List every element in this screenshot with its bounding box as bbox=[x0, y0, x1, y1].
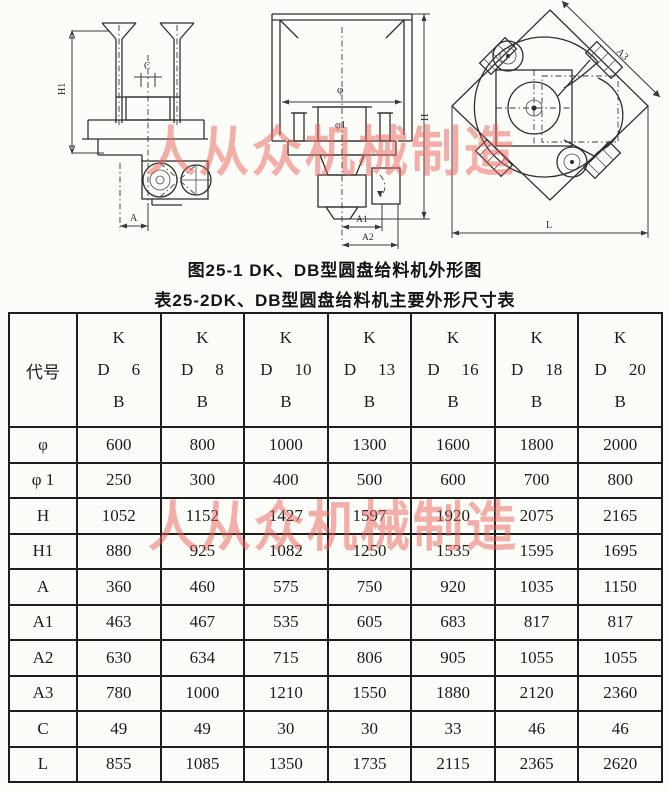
table-cell: 33 bbox=[411, 711, 495, 747]
row-label: C bbox=[9, 711, 77, 747]
table-cell: 1600 bbox=[411, 427, 495, 463]
dim-label-a1: A1 bbox=[356, 215, 368, 225]
table-cell: 575 bbox=[244, 569, 328, 605]
front-view-drawing: H1 C bbox=[52, 3, 252, 253]
table-cell: 535 bbox=[244, 605, 328, 641]
table-cell: 700 bbox=[495, 463, 579, 499]
table-cell: 400 bbox=[244, 463, 328, 499]
side-view-drawing: φ φ1 H A1 bbox=[260, 3, 440, 253]
table-cell: 46 bbox=[578, 711, 662, 747]
table-cell: 1000 bbox=[161, 676, 245, 712]
table-cell: 1085 bbox=[161, 747, 245, 783]
table-cell: 1210 bbox=[244, 676, 328, 712]
table-cell: 855 bbox=[77, 747, 161, 783]
row-label: A2 bbox=[9, 640, 77, 676]
table-cell: 605 bbox=[328, 605, 412, 641]
top-view-drawing: A3 L bbox=[430, 0, 670, 248]
table-cell: 1550 bbox=[328, 676, 412, 712]
row-label: φ bbox=[9, 427, 77, 463]
table-row: A263063471580690510551055 bbox=[9, 640, 662, 676]
table-row: C49493030334646 bbox=[9, 711, 662, 747]
table-cell: 683 bbox=[411, 605, 495, 641]
table-cell: 1735 bbox=[328, 747, 412, 783]
table-row: A3780100012101550188021202360 bbox=[9, 676, 662, 712]
table-cell: 1427 bbox=[244, 498, 328, 534]
figure-caption: 图25-1 DK、DB型圆盘给料机外形图 bbox=[0, 256, 670, 281]
table-cell: 46 bbox=[495, 711, 579, 747]
dimension-table: 代号 KD6BKD8BKD10BKD13BKD16BKD18BKD20B φ60… bbox=[8, 312, 663, 783]
table-cell: 800 bbox=[578, 463, 662, 499]
row-label: A3 bbox=[9, 676, 77, 712]
table-cell: 1150 bbox=[578, 569, 662, 605]
dim-label-a2: A2 bbox=[362, 233, 374, 243]
table-cell: 460 bbox=[161, 569, 245, 605]
table-cell: 2000 bbox=[578, 427, 662, 463]
table-row: H188092510821250153515951695 bbox=[9, 534, 662, 570]
table-cell: 1597 bbox=[328, 498, 412, 534]
dim-label-a: A bbox=[130, 213, 138, 224]
table-cell: 920 bbox=[411, 569, 495, 605]
table-cell: 467 bbox=[161, 605, 245, 641]
table-cell: 500 bbox=[328, 463, 412, 499]
table-cell: 715 bbox=[244, 640, 328, 676]
table-cell: 1300 bbox=[328, 427, 412, 463]
model-header-cell: KD13B bbox=[328, 313, 412, 427]
table-cell: 780 bbox=[77, 676, 161, 712]
table-cell: 817 bbox=[578, 605, 662, 641]
table-cell: 463 bbox=[77, 605, 161, 641]
table-row: L855108513501735211523652620 bbox=[9, 747, 662, 783]
table-cell: 1152 bbox=[161, 498, 245, 534]
model-header-cell: KD8B bbox=[161, 313, 245, 427]
table-cell: 1055 bbox=[578, 640, 662, 676]
model-header-cell: KD6B bbox=[77, 313, 161, 427]
table-body: φ60080010001300160018002000φ 12503004005… bbox=[9, 427, 662, 782]
table-header-row: 代号 KD6BKD8BKD10BKD13BKD16BKD18BKD20B bbox=[9, 313, 662, 427]
table-row: A1463467535605683817817 bbox=[9, 605, 662, 641]
table-cell: 1052 bbox=[77, 498, 161, 534]
table-cell: 1082 bbox=[244, 534, 328, 570]
table-row: A36046057575092010351150 bbox=[9, 569, 662, 605]
row-label: H bbox=[9, 498, 77, 534]
table-cell: 1350 bbox=[244, 747, 328, 783]
table-cell: 1000 bbox=[244, 427, 328, 463]
table-cell: 600 bbox=[77, 427, 161, 463]
dim-label-h1: H1 bbox=[57, 83, 68, 95]
table-cell: 250 bbox=[77, 463, 161, 499]
table-cell: 1595 bbox=[495, 534, 579, 570]
table-cell: 49 bbox=[161, 711, 245, 747]
table-cell: 49 bbox=[77, 711, 161, 747]
table-cell: 634 bbox=[161, 640, 245, 676]
table-cell: 1695 bbox=[578, 534, 662, 570]
dim-label-c: C bbox=[144, 61, 151, 72]
table-cell: 30 bbox=[328, 711, 412, 747]
table-cell: 2075 bbox=[495, 498, 579, 534]
table-cell: 30 bbox=[244, 711, 328, 747]
table-cell: 2165 bbox=[578, 498, 662, 534]
table-cell: 1250 bbox=[328, 534, 412, 570]
model-header-cell: KD10B bbox=[244, 313, 328, 427]
table-cell: 800 bbox=[161, 427, 245, 463]
table-caption: 表25-2DK、DB型圆盘给料机主要外形尺寸表 bbox=[0, 286, 670, 311]
dim-label-l: L bbox=[546, 220, 552, 231]
table-row: φ 1250300400500600700800 bbox=[9, 463, 662, 499]
model-header-cell: KD16B bbox=[411, 313, 495, 427]
code-header-cell: 代号 bbox=[9, 313, 77, 427]
document-page: H1 C bbox=[0, 0, 670, 791]
row-label: A bbox=[9, 569, 77, 605]
row-label: H1 bbox=[9, 534, 77, 570]
table-cell: 925 bbox=[161, 534, 245, 570]
table-cell: 880 bbox=[77, 534, 161, 570]
table-cell: 1055 bbox=[495, 640, 579, 676]
table-cell: 300 bbox=[161, 463, 245, 499]
table-cell: 905 bbox=[411, 640, 495, 676]
table-cell: 1035 bbox=[495, 569, 579, 605]
row-label: L bbox=[9, 747, 77, 783]
table-cell: 817 bbox=[495, 605, 579, 641]
table-cell: 360 bbox=[77, 569, 161, 605]
model-header-cell: KD18B bbox=[495, 313, 579, 427]
row-label: φ 1 bbox=[9, 463, 77, 499]
table-cell: 1880 bbox=[411, 676, 495, 712]
table-cell: 2620 bbox=[578, 747, 662, 783]
table-cell: 2360 bbox=[578, 676, 662, 712]
table-row: H1052115214271597192020752165 bbox=[9, 498, 662, 534]
table-cell: 1920 bbox=[411, 498, 495, 534]
table-cell: 806 bbox=[328, 640, 412, 676]
table-cell: 2365 bbox=[495, 747, 579, 783]
table-cell: 630 bbox=[77, 640, 161, 676]
table-cell: 1800 bbox=[495, 427, 579, 463]
model-header-cell: KD20B bbox=[578, 313, 662, 427]
table-cell: 750 bbox=[328, 569, 412, 605]
row-label: A1 bbox=[9, 605, 77, 641]
table-cell: 1535 bbox=[411, 534, 495, 570]
dim-label-phi: φ bbox=[337, 84, 343, 96]
table-row: φ60080010001300160018002000 bbox=[9, 427, 662, 463]
table-cell: 2120 bbox=[495, 676, 579, 712]
dim-label-phi1: φ1 bbox=[335, 120, 346, 131]
table-cell: 600 bbox=[411, 463, 495, 499]
table-cell: 2115 bbox=[411, 747, 495, 783]
